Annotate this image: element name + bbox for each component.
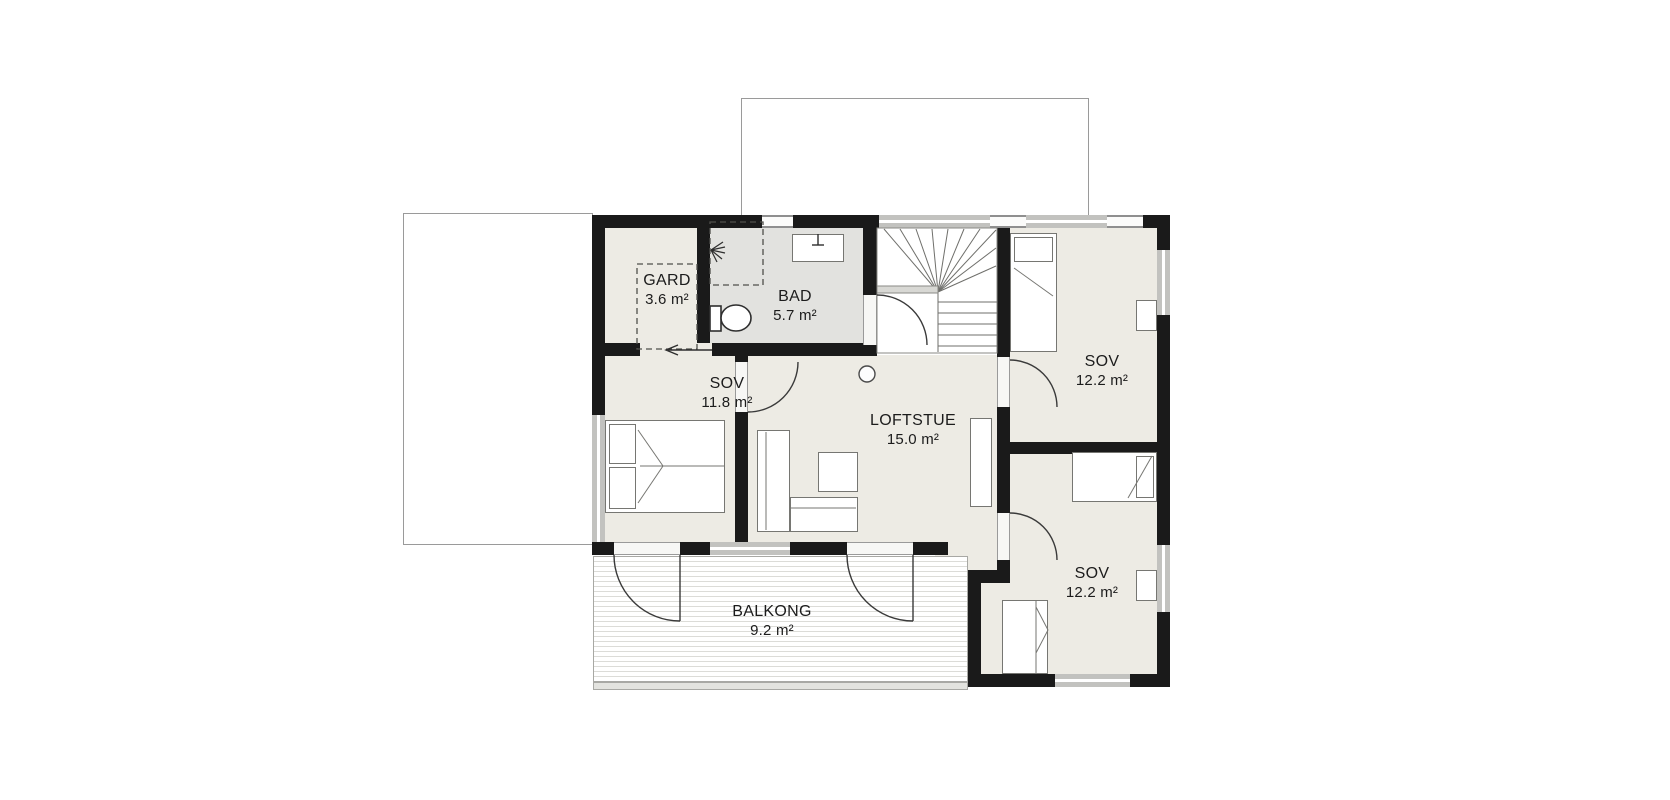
door-opening-bad [863,295,877,345]
window [879,215,990,228]
room-name: SOV [1076,352,1128,371]
room-name: SOV [701,374,752,393]
label-sov-3: SOV 12.2 m² [1066,564,1118,602]
wall-bedroom-west [968,583,981,687]
window [592,415,605,542]
pillow [609,424,636,464]
bathroom-counter [792,234,844,262]
label-bad: BAD 5.7 m² [773,287,817,325]
label-sov-1: SOV 11.8 m² [701,374,752,412]
window [1157,250,1170,315]
door-opening-balcony-loftstue [847,542,913,555]
pillow [1014,237,1053,262]
coffee-table [818,452,858,492]
wall-balcony-corner [968,570,1010,583]
window [1055,674,1130,687]
label-balkong: BALKONG 9.2 m² [732,602,811,640]
roof-outline-left [403,213,593,545]
sofa [757,430,790,532]
window [990,215,1026,228]
wall-gard-bad [697,228,710,356]
window [1107,215,1143,228]
door-opening-bedroom-bottom [997,513,1010,560]
window [1026,215,1107,228]
room-area: 5.7 m² [773,306,817,325]
room-name: SOV [1066,564,1118,583]
window [762,215,793,228]
pillow [1136,456,1154,498]
window [1157,545,1170,612]
label-gard: GARD 3.6 m² [643,271,690,309]
room-area: 12.2 m² [1076,371,1128,390]
room-name: BALKONG [732,602,811,621]
floor-plan: GARD 3.6 m² BAD 5.7 m² SOV 11.8 m² LOFTS… [0,0,1670,800]
pillow [609,467,636,509]
desk [1136,570,1157,601]
room-name: GARD [643,271,690,290]
tv-bench [970,418,992,507]
balcony-railing [593,682,968,690]
roof-outline-top [741,98,1089,216]
room-area: 11.8 m² [701,393,752,412]
door-opening-bedroom-top [997,357,1010,407]
desk [1136,300,1157,331]
label-sov-2: SOV 12.2 m² [1076,352,1128,390]
bed-single [1002,600,1048,674]
door-opening-balcony-sov [614,542,680,555]
room-area: 3.6 m² [643,290,690,309]
floor-stairwell [877,228,997,355]
room-name: BAD [773,287,817,306]
label-loftstue: LOFTSTUE 15.0 m² [870,411,956,449]
sliding-door-opening-gard [640,343,712,356]
room-area: 15.0 m² [870,430,956,449]
room-area: 9.2 m² [732,621,811,640]
window [710,542,790,555]
room-area: 12.2 m² [1066,583,1118,602]
sofa-chaise [790,497,858,532]
room-name: LOFTSTUE [870,411,956,430]
